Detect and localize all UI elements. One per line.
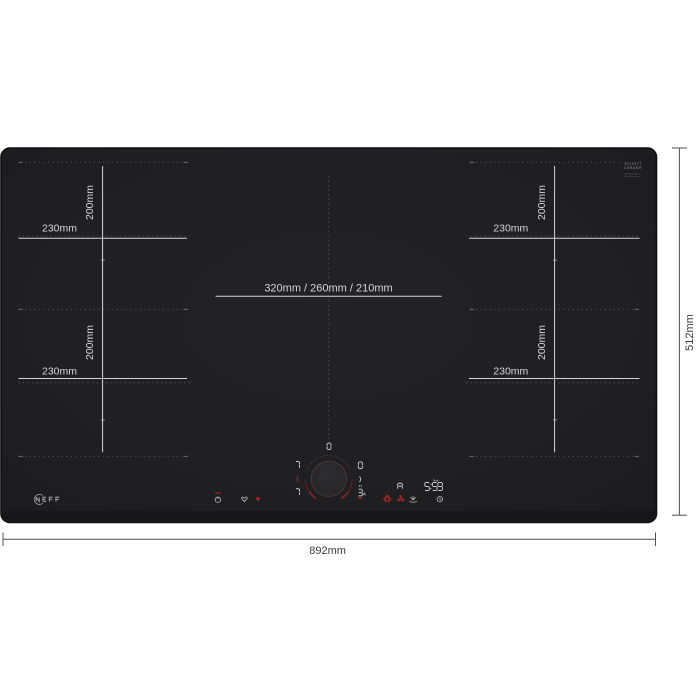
svg-text:230mm: 230mm: [42, 223, 77, 235]
svg-text:Made in Germany: Made in Germany: [623, 176, 639, 178]
svg-text:512mm: 512mm: [684, 314, 696, 351]
svg-text:230mm: 230mm: [42, 366, 77, 378]
svg-text:200mm: 200mm: [536, 185, 548, 220]
svg-text:CERAN®: CERAN®: [624, 166, 642, 170]
svg-text:320mm / 260mm / 210mm: 320mm / 260mm / 210mm: [264, 283, 392, 295]
svg-text:200mm: 200mm: [84, 325, 96, 360]
svg-text:200mm: 200mm: [536, 325, 548, 360]
svg-text:230mm: 230mm: [493, 366, 528, 378]
svg-text:892mm: 892mm: [309, 545, 346, 557]
svg-text:230mm: 230mm: [493, 223, 528, 235]
svg-text:200mm: 200mm: [84, 185, 96, 220]
